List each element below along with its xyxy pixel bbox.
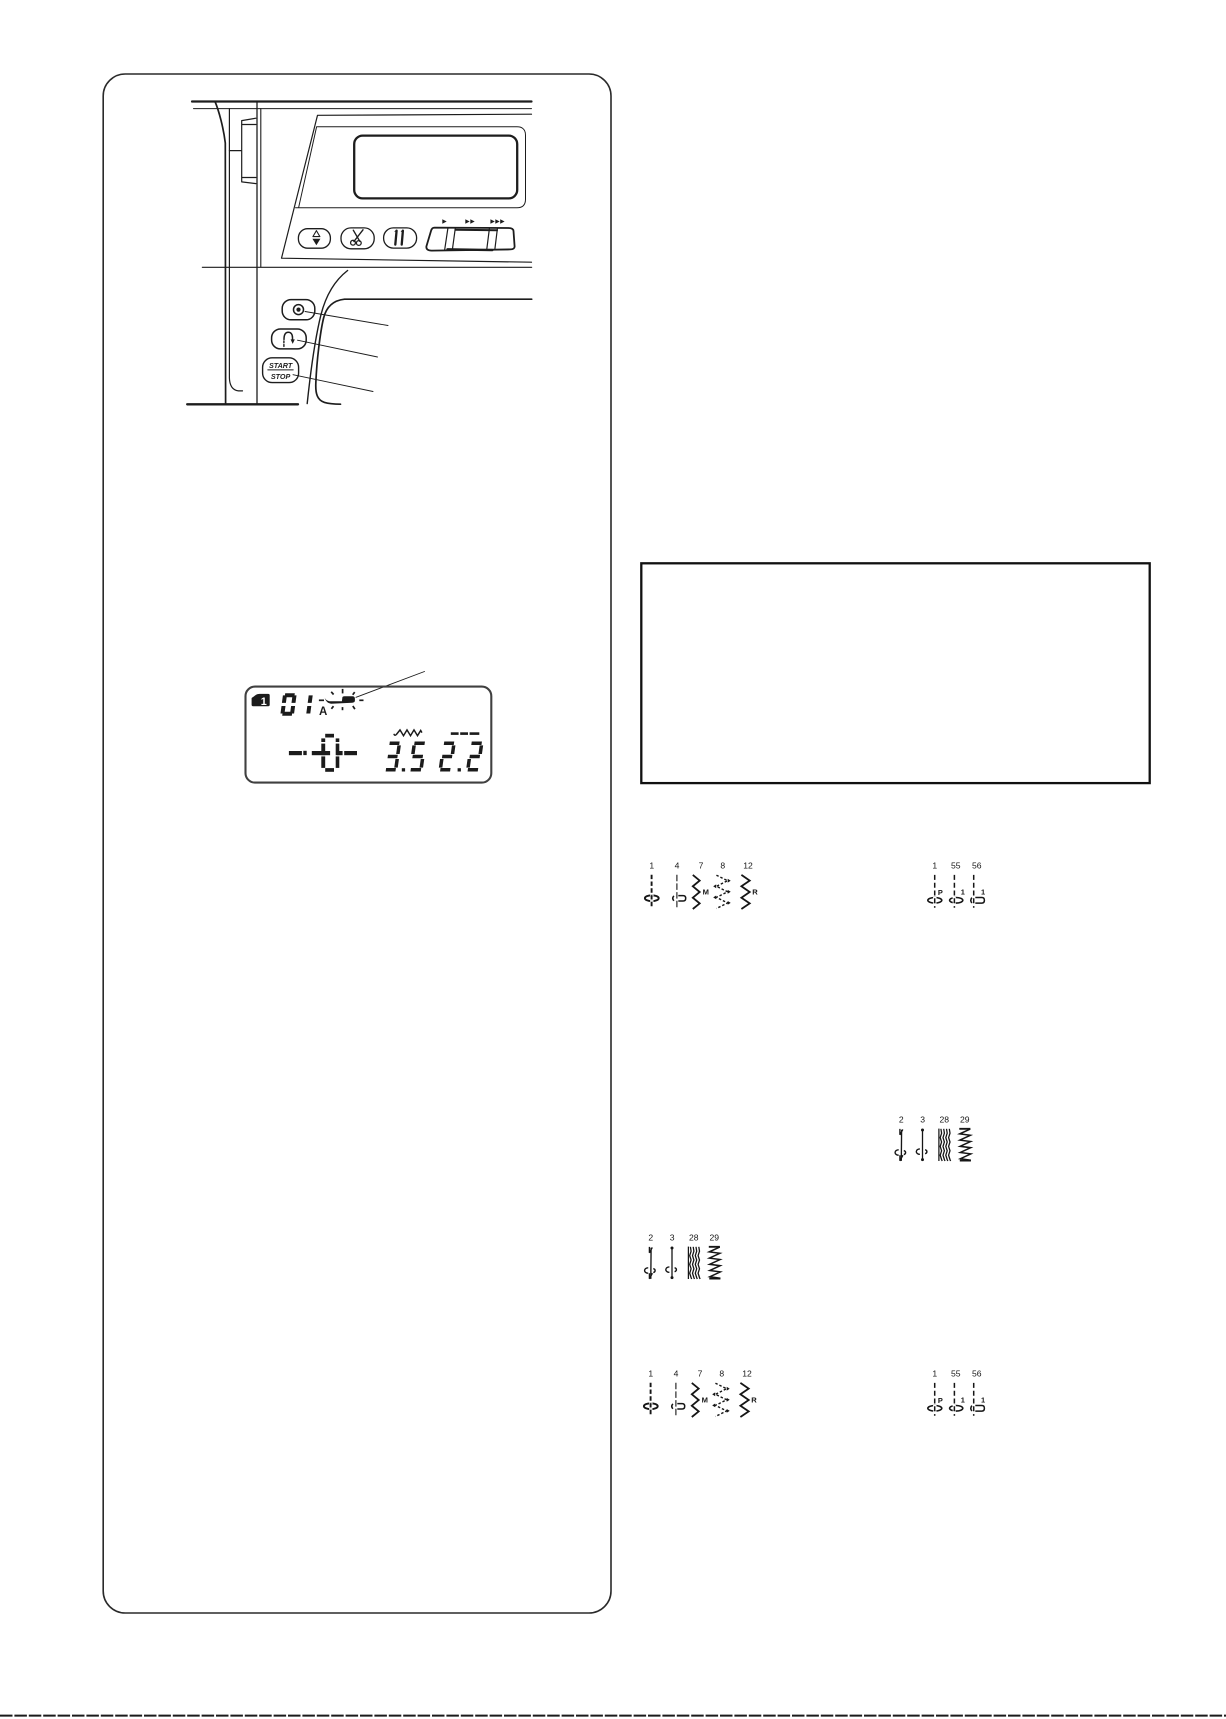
svg-text:START: START (269, 361, 293, 370)
svg-text:A: A (319, 706, 327, 718)
svg-text:1: 1 (261, 696, 267, 708)
svg-text:STOP: STOP (271, 372, 291, 381)
